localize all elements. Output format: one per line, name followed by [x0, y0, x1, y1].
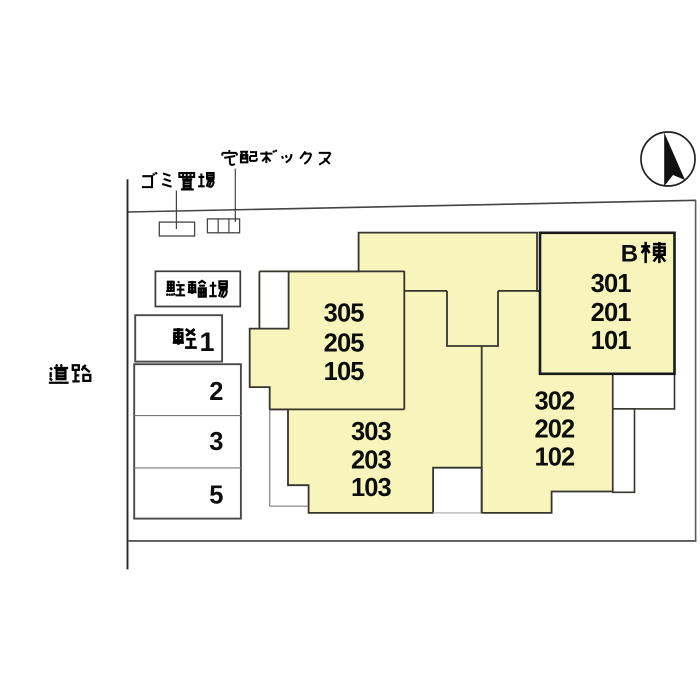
- svg-text:101: 101: [591, 327, 632, 355]
- svg-text:305: 305: [324, 299, 365, 327]
- svg-text:202: 202: [534, 416, 575, 444]
- svg-text:103: 103: [351, 474, 392, 502]
- svg-text:302: 302: [534, 387, 575, 415]
- svg-text:105: 105: [324, 358, 365, 386]
- svg-text:201: 201: [591, 299, 632, 327]
- svg-text:B: B: [621, 241, 638, 268]
- svg-text:301: 301: [591, 270, 632, 298]
- svg-text:205: 205: [324, 329, 365, 357]
- svg-text:5: 5: [209, 481, 223, 509]
- svg-text:3: 3: [209, 428, 223, 456]
- svg-text:102: 102: [534, 444, 575, 472]
- svg-text:303: 303: [351, 418, 392, 446]
- svg-text:1: 1: [199, 327, 214, 357]
- svg-text:203: 203: [351, 446, 392, 474]
- svg-text:2: 2: [209, 378, 223, 406]
